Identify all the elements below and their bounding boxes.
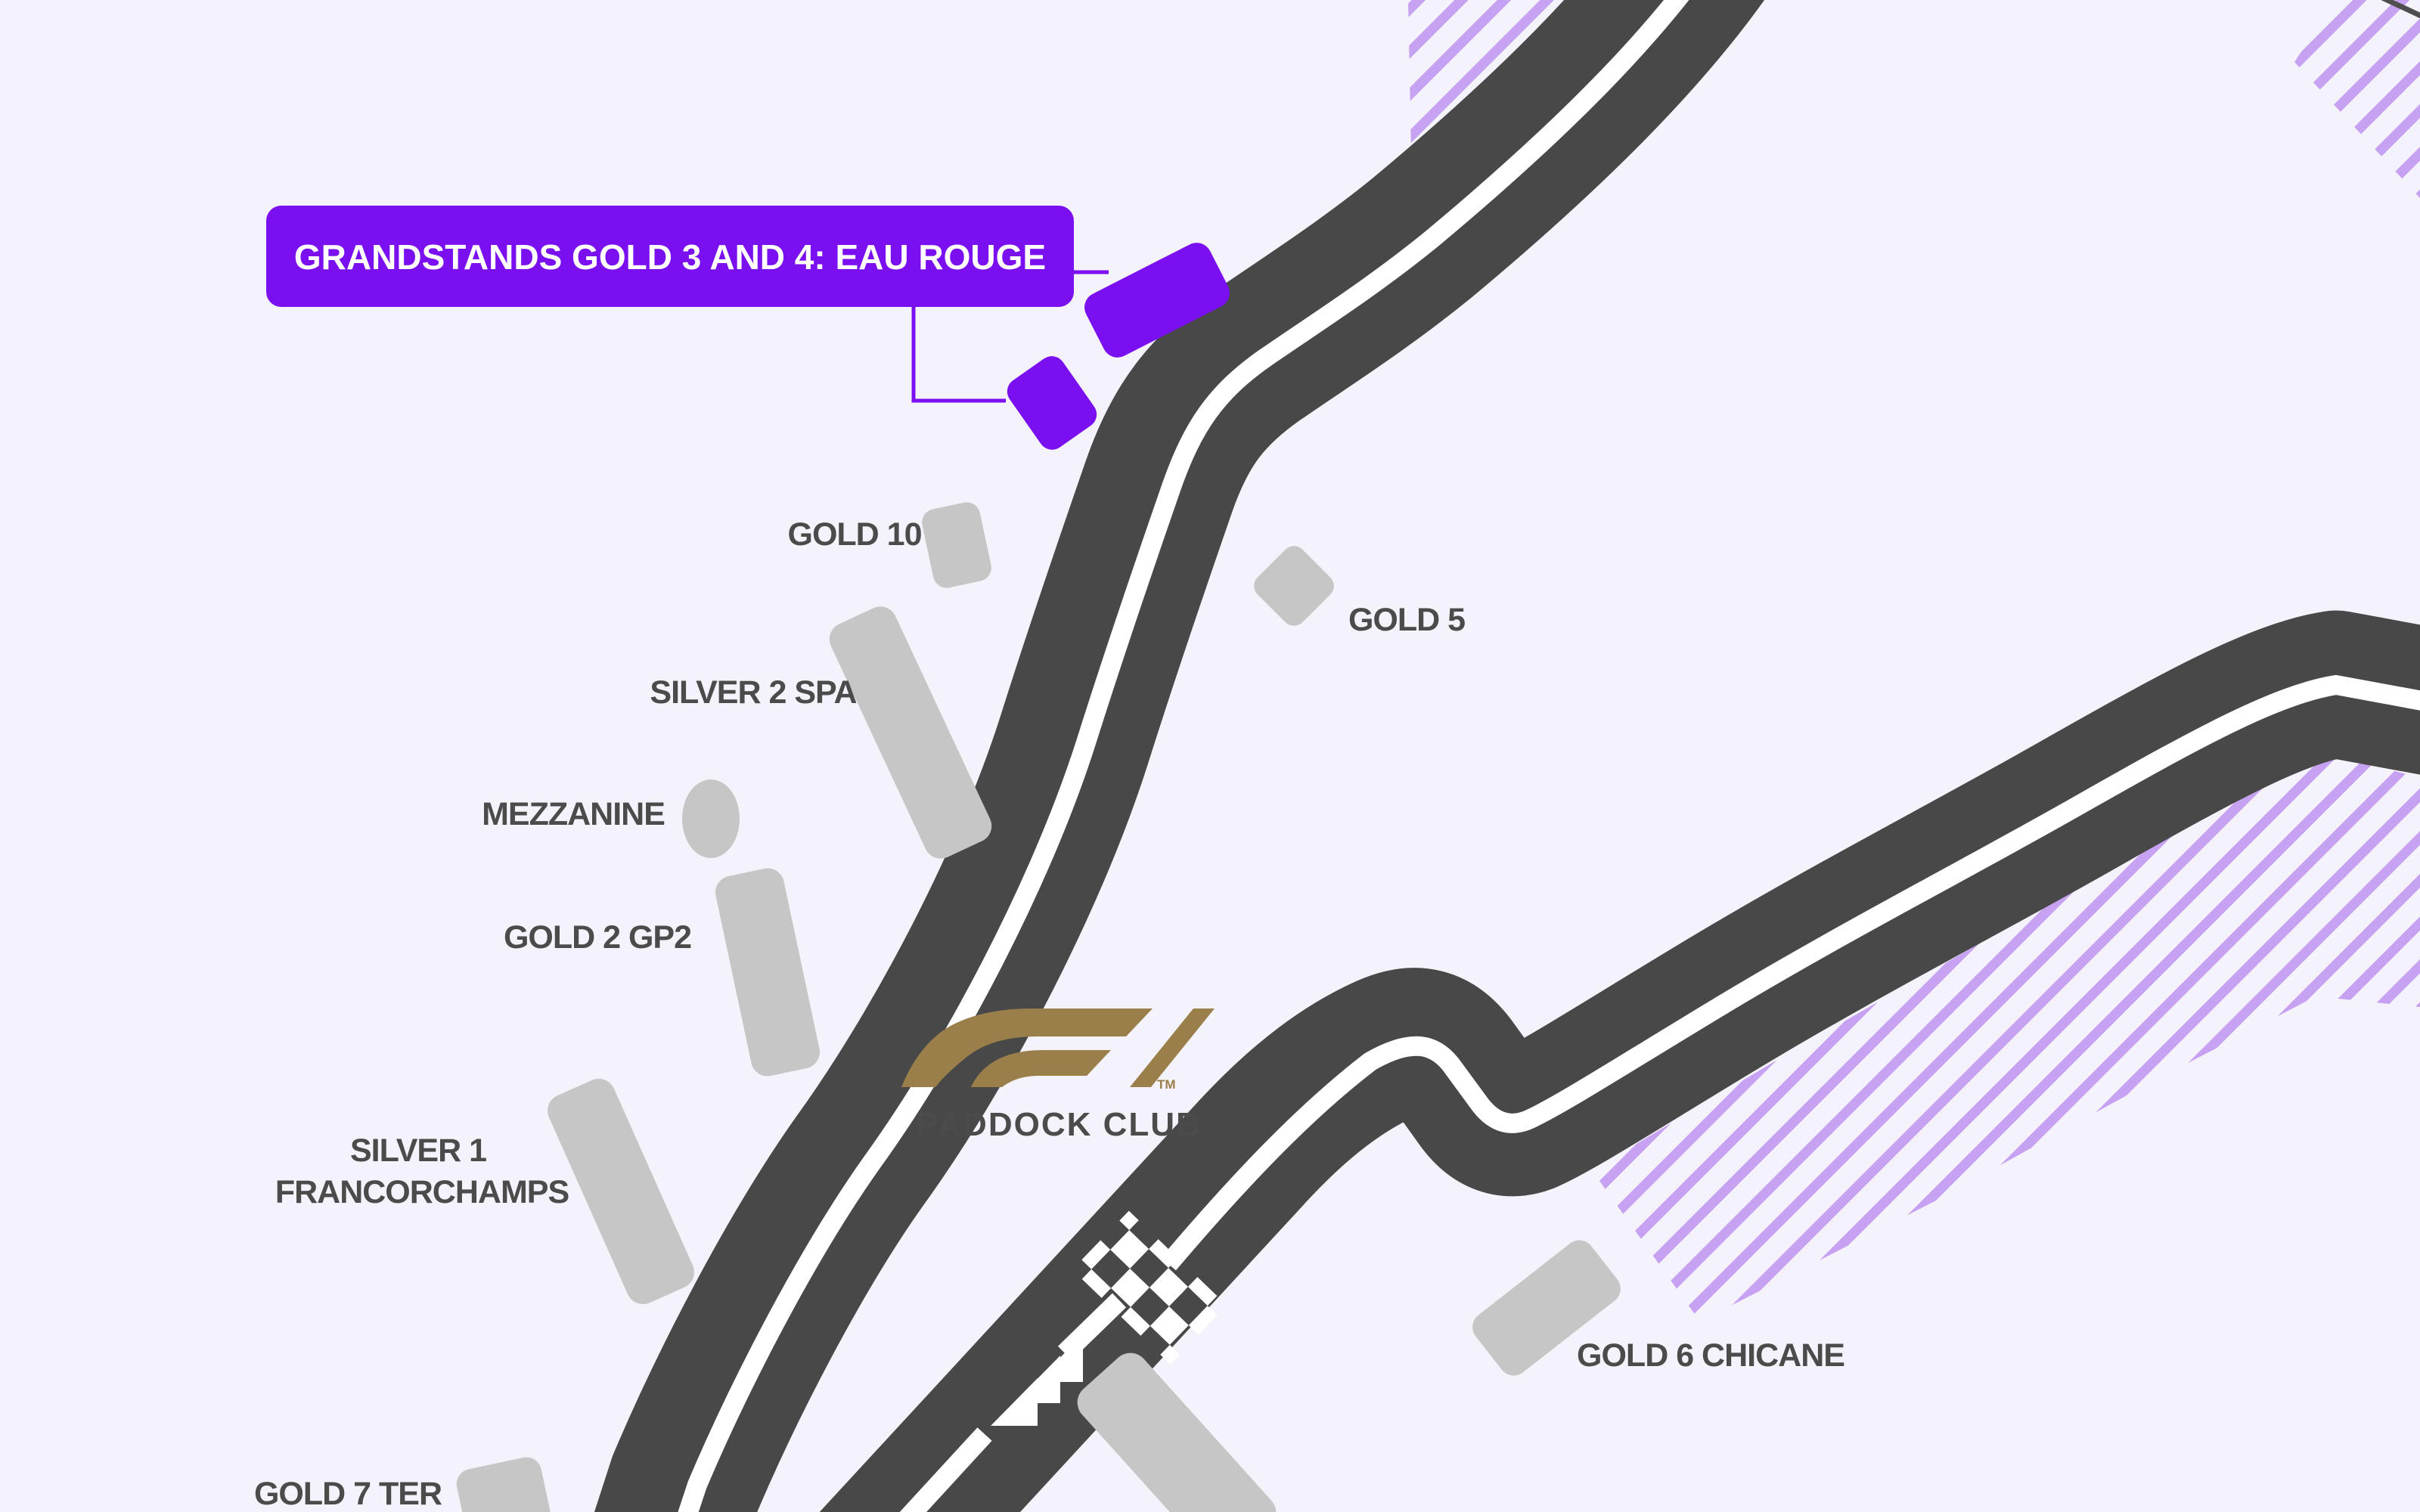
label-silver-1: SILVER 1 bbox=[350, 1132, 486, 1169]
paddock-club-label: PADDOCK CLUB bbox=[916, 1106, 1202, 1143]
callout-label: GRANDSTANDS GOLD 3 AND 4: EAU ROUGE bbox=[294, 237, 1046, 277]
label-francorchamps: FRANCORCHAMPS bbox=[275, 1174, 569, 1210]
label-gold-10: GOLD 10 bbox=[788, 516, 922, 553]
label-gold-5: GOLD 5 bbox=[1348, 602, 1465, 638]
f1-logo-trademark: TM bbox=[1157, 1077, 1176, 1092]
label-gold-7-ter: GOLD 7 TER bbox=[254, 1476, 442, 1512]
label-gold-2-gp2: GOLD 2 GP2 bbox=[504, 919, 691, 956]
label-gold-6-chicane: GOLD 6 CHICANE bbox=[1577, 1337, 1844, 1374]
label-silver-2-spa: SILVER 2 SPA bbox=[650, 674, 856, 711]
grandstand-mezzanine[interactable] bbox=[682, 779, 740, 858]
label-mezzanine: MEZZANINE bbox=[482, 796, 665, 832]
circuit-map: GRANDSTANDS GOLD 3 AND 4: EAU ROUGE GOLD… bbox=[0, 0, 2420, 1512]
